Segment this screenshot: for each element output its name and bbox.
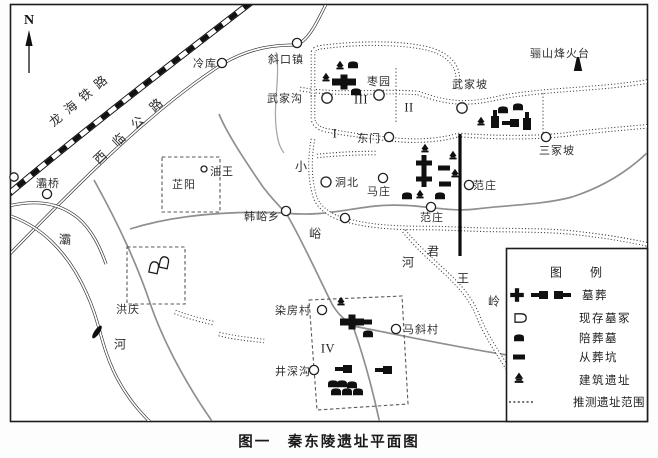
accompanying-tomb-icon	[402, 192, 412, 199]
accompanying-tomb-icon	[331, 388, 341, 395]
xiaoyu-river-char: 峪	[309, 225, 321, 242]
accompanying-tomb-icon	[348, 61, 358, 68]
place-hongqing: 洪庆	[116, 301, 140, 317]
junwangling-char: 王	[457, 270, 469, 287]
sacrificial-pit-icon	[360, 320, 372, 325]
zone-2-label: II	[404, 101, 413, 116]
place-wujiagou: 武家沟	[267, 90, 303, 106]
north-label: N	[24, 13, 34, 29]
place-zhiyang: 芷阳	[172, 176, 196, 192]
accompanying-tomb-icon	[435, 192, 445, 199]
figure-caption: 图一 秦东陵遗址平面图	[238, 431, 420, 452]
ba-river-char: 灞	[59, 231, 71, 248]
junwangling-char: 君	[427, 243, 439, 260]
xiaoyu-river-char: 小	[295, 158, 307, 175]
place-fanzhuang-east: 范庄	[473, 177, 497, 193]
accompanying-tomb-icon	[353, 388, 363, 395]
sacrificial-pit-icon	[439, 182, 451, 187]
accompanying-tomb-icon	[342, 388, 352, 395]
zone-3-label: III	[354, 93, 368, 108]
place-dongbei: 洞北	[335, 174, 359, 190]
place-xiekouzhen: 斜口镇	[268, 51, 304, 67]
place-youwang: 油王	[210, 163, 234, 179]
place-lishan-fenghuotai: 骊山烽火台	[530, 45, 590, 61]
place-jingshengou: 井深沟	[275, 363, 311, 379]
accompanying-tomb-icon	[363, 330, 373, 337]
legend-item-building-remains: 建筑遗址	[579, 372, 631, 388]
legend-item-estimated-extent: 推测遗址范围	[573, 394, 645, 410]
place-zaoyuan: 枣园	[367, 73, 391, 89]
place-fanzhuang-south: 范庄	[420, 209, 444, 225]
junwangling-char: 岭	[488, 293, 500, 310]
place-lengku: 冷库	[193, 55, 217, 71]
legend-item-tombs: 墓葬	[582, 287, 608, 303]
legend-existing-mound-icon	[515, 314, 526, 322]
accompanying-tomb-icon	[337, 380, 347, 387]
accompanying-tomb-icon	[498, 106, 508, 113]
accompanying-tomb-icon	[513, 103, 523, 110]
zone-4-label: IV	[321, 342, 335, 357]
legend-sacrificial-pit-icon	[513, 355, 525, 360]
legend-item-accompanying-tombs: 陪葬墓	[579, 330, 618, 346]
place-wujiapo: 武家坡	[452, 76, 488, 92]
place-hanyuxiang: 韩峪乡	[244, 208, 280, 224]
place-dongmen: 东门	[357, 130, 381, 146]
accompanying-tomb-icon	[328, 380, 338, 387]
place-mazhuang: 马庄	[367, 183, 391, 199]
zone-1-label: I	[333, 127, 338, 142]
legend-item-existing-mounds: 现存墓冢	[579, 310, 631, 326]
legend-title: 图 例	[550, 264, 610, 281]
xiaoyu-river-char: 河	[402, 254, 414, 271]
place-maxiecun: 马斜村	[403, 321, 439, 337]
figure-page: 龙海铁路 西临公路 N 灞桥 冷库 斜口镇 武家沟 枣园 武家坡 骊山烽火台 三…	[0, 0, 658, 458]
place-ranfangcun: 染房村	[275, 302, 311, 318]
legend-accompanying-tomb-icon	[514, 334, 524, 341]
place-sanzhongpo: 三冢坡	[539, 142, 575, 158]
legend-item-sacrificial-pits: 从葬坑	[579, 349, 618, 365]
place-baqiao: 灞桥	[36, 175, 60, 191]
ba-river-char: 河	[114, 336, 126, 353]
sacrificial-pit-icon	[438, 166, 450, 171]
accompanying-tomb-icon	[347, 381, 357, 388]
